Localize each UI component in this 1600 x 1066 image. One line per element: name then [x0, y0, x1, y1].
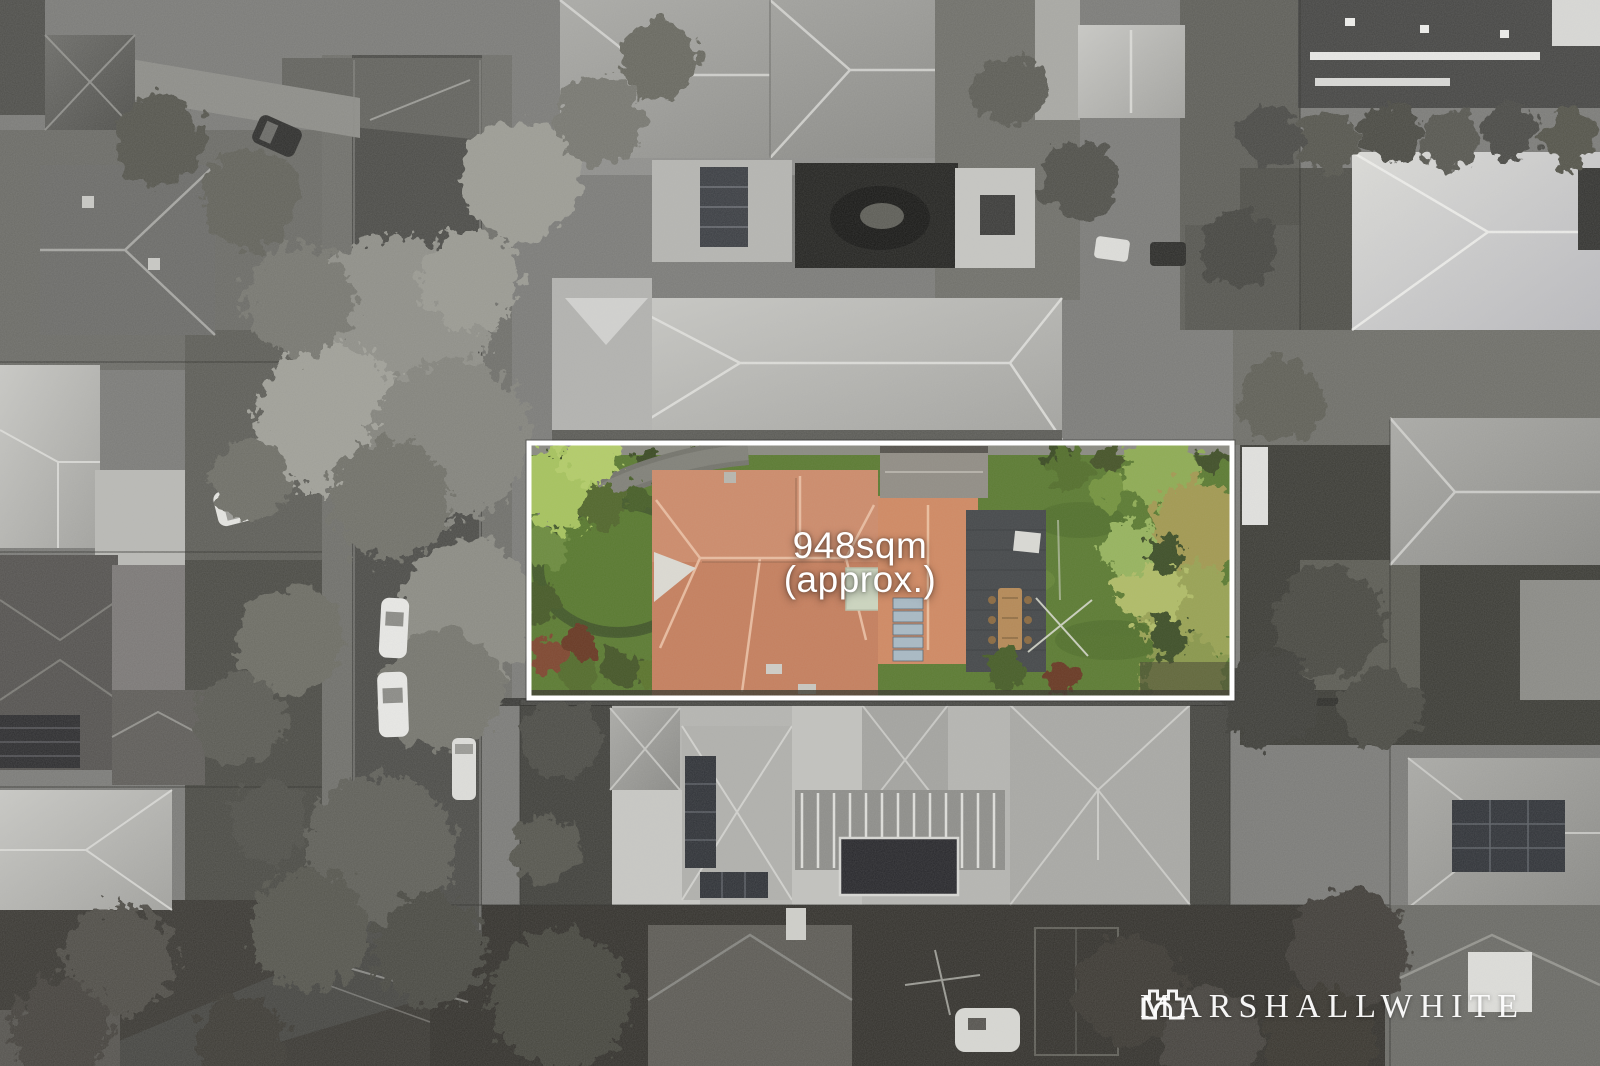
- aerial-photo: 948sqm (approx.) MARSHALLWHITE: [0, 0, 1600, 1066]
- brand-name: MARSHALLWHITE: [1140, 988, 1525, 1026]
- area-value: 948sqm: [784, 529, 937, 563]
- castle-icon: [1140, 988, 1186, 1020]
- area-label: 948sqm (approx.): [784, 529, 937, 597]
- brand-watermark: MARSHALLWHITE: [1140, 988, 1525, 1026]
- area-qualifier: (approx.): [784, 563, 937, 597]
